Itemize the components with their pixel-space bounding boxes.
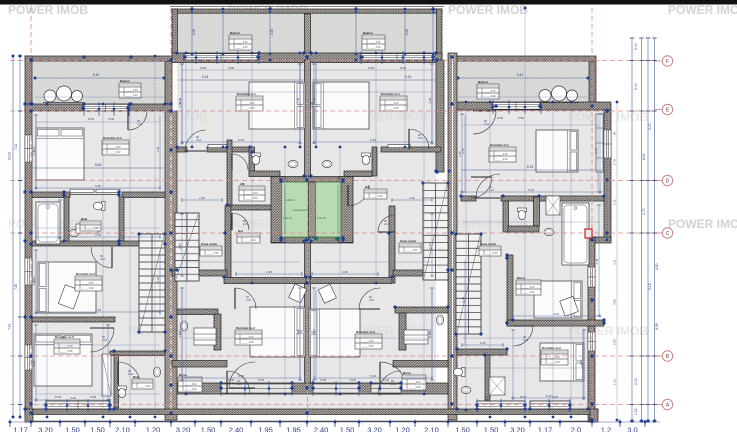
svg-text:2.10: 2.10 <box>391 382 397 386</box>
svg-text:2.70: 2.70 <box>642 208 646 215</box>
svg-text:2.20: 2.20 <box>409 196 415 200</box>
svg-text:4.80: 4.80 <box>655 263 659 270</box>
svg-text:P=90: P=90 <box>485 395 492 399</box>
svg-text:3.44: 3.44 <box>517 73 524 77</box>
svg-text:1.50: 1.50 <box>65 425 80 432</box>
svg-text:3.20: 3.20 <box>510 425 525 432</box>
svg-text:1.50: 1.50 <box>455 425 470 432</box>
svg-text:P=90: P=90 <box>518 116 525 120</box>
svg-text:P=90: P=90 <box>400 66 407 70</box>
svg-text:5.33: 5.33 <box>528 188 534 192</box>
svg-text:4.33: 4.33 <box>296 329 300 335</box>
svg-text:4.33: 4.33 <box>428 332 432 338</box>
svg-text:P=90: P=90 <box>200 66 207 70</box>
svg-text:4.50: 4.50 <box>613 299 617 305</box>
svg-text:F: F <box>666 59 669 65</box>
svg-text:2.40: 2.40 <box>314 425 329 432</box>
svg-text:P=90: P=90 <box>497 116 504 120</box>
svg-text:_____ 0.00: _____ 0.00 <box>60 350 74 353</box>
svg-text:2.10: 2.10 <box>243 222 249 226</box>
svg-text:7.41: 7.41 <box>32 149 36 155</box>
svg-text:Baie: Baie <box>81 217 88 221</box>
svg-text:_____ 0.00: _____ 0.00 <box>138 385 152 388</box>
svg-text:_____ 0.00: _____ 0.00 <box>408 386 422 389</box>
svg-text:_____ 0.00: _____ 0.00 <box>81 287 95 290</box>
svg-text:2.10: 2.10 <box>484 122 490 126</box>
svg-text:1.20: 1.20 <box>395 425 410 432</box>
svg-text:3.45: 3.45 <box>458 151 462 157</box>
svg-text:D: D <box>666 179 670 185</box>
svg-text:1.95: 1.95 <box>258 425 273 432</box>
svg-text:_____ 0.00: _____ 0.00 <box>86 227 100 230</box>
svg-text:POWER IMOB: POWER IMOB <box>8 3 88 17</box>
svg-text:2.00: 2.00 <box>634 83 638 90</box>
svg-text:_____ 0.00: _____ 0.00 <box>235 46 249 49</box>
svg-text:1.50: 1.50 <box>201 425 216 432</box>
svg-text:_____ 0.00: _____ 0.00 <box>184 388 198 391</box>
svg-text:2.10: 2.10 <box>384 222 390 226</box>
svg-text:Dormitor nr.3: Dormitor nr.3 <box>55 335 74 339</box>
svg-text:4.59: 4.59 <box>655 323 659 330</box>
svg-text:_____ 0.00: _____ 0.00 <box>108 151 122 154</box>
svg-text:4.26 m²: 4.26 m² <box>285 198 295 202</box>
svg-text:Casa scarii: Casa scarii <box>400 239 416 243</box>
svg-text:_____ 0.00: _____ 0.00 <box>483 90 497 93</box>
svg-text:Casa scarii: Casa scarii <box>480 242 496 246</box>
svg-text:4.33: 4.33 <box>178 332 182 338</box>
svg-text:_____ 0.00: _____ 0.00 <box>242 102 256 105</box>
svg-text:P=90: P=90 <box>258 378 265 382</box>
svg-text:3.07: 3.07 <box>554 312 560 316</box>
svg-text:2.40: 2.40 <box>229 425 244 432</box>
svg-text:1.17: 1.17 <box>538 425 553 432</box>
svg-text:Birou: Birou <box>517 276 525 280</box>
svg-text:_____ 0.00: _____ 0.00 <box>242 107 256 110</box>
svg-text:90: 90 <box>613 131 617 135</box>
svg-text:P=90: P=90 <box>228 66 235 70</box>
svg-text:1.20: 1.20 <box>146 425 161 432</box>
svg-text:POWER IMOB: POWER IMOB <box>448 3 528 17</box>
svg-text:2.00: 2.00 <box>634 378 638 385</box>
svg-text:7.20: 7.20 <box>14 284 18 290</box>
svg-text:2.00: 2.00 <box>613 339 617 345</box>
svg-text:2.10: 2.10 <box>115 425 130 432</box>
svg-text:7.41: 7.41 <box>8 324 12 330</box>
svg-text:_____ 0.00: _____ 0.00 <box>485 252 499 255</box>
svg-text:2.00: 2.00 <box>405 29 409 35</box>
svg-text:3.20: 3.20 <box>32 279 36 285</box>
svg-text:1.50: 1.50 <box>90 425 105 432</box>
svg-text:_____ 0.00: _____ 0.00 <box>245 197 259 200</box>
svg-text:_____ 0.00: _____ 0.00 <box>408 381 422 384</box>
svg-text:Balcon: Balcon <box>120 79 130 83</box>
svg-text:3.31: 3.31 <box>461 296 465 302</box>
svg-text:_____ 0.00: _____ 0.00 <box>245 192 259 195</box>
svg-text:1.50: 1.50 <box>484 425 499 432</box>
svg-text:2.00: 2.00 <box>270 29 274 35</box>
svg-text:3.20: 3.20 <box>367 425 382 432</box>
svg-text:3.20: 3.20 <box>32 360 36 366</box>
svg-text:_____ 0.00: _____ 0.00 <box>241 341 255 344</box>
svg-text:5.33: 5.33 <box>370 138 376 142</box>
svg-text:1.12: 1.12 <box>613 379 617 385</box>
svg-text:1.00 .30: 1.00 .30 <box>283 217 292 220</box>
svg-text:_____ 0.00: _____ 0.00 <box>125 89 139 92</box>
svg-text:2.10: 2.10 <box>369 298 375 302</box>
svg-text:3.20: 3.20 <box>176 425 191 432</box>
svg-text:2.10: 2.10 <box>196 138 202 142</box>
svg-text:2.10: 2.10 <box>137 122 143 126</box>
svg-text:3.90: 3.90 <box>310 101 314 107</box>
svg-text:P=90: P=90 <box>108 117 115 121</box>
svg-text:ceva denumire: ceva denumire <box>293 209 309 212</box>
svg-text:P=90: P=90 <box>55 395 62 399</box>
svg-text:LM: LM <box>240 182 245 186</box>
svg-text:P=90: P=90 <box>88 117 95 121</box>
svg-text:_____ 0.00: _____ 0.00 <box>522 291 536 294</box>
svg-text:1.95: 1.95 <box>286 425 301 432</box>
svg-text:_____ 0.00: _____ 0.00 <box>184 383 198 386</box>
svg-text:_____ 0.00: _____ 0.00 <box>522 286 536 289</box>
svg-text:2.00: 2.00 <box>192 29 196 35</box>
svg-text:Dormitor nr.2: Dormitor nr.2 <box>76 272 95 276</box>
svg-text:P=90: P=90 <box>320 378 327 382</box>
svg-text:2.20: 2.20 <box>480 341 486 345</box>
svg-text:Balcon: Balcon <box>478 80 488 84</box>
svg-text:2.70: 2.70 <box>613 159 617 165</box>
svg-text:2.00: 2.00 <box>648 123 652 130</box>
svg-text:2.00: 2.00 <box>634 43 638 50</box>
svg-text:2.10: 2.10 <box>246 298 252 302</box>
svg-text:2.20: 2.20 <box>199 196 205 200</box>
svg-text:Dormitor nr.1: Dormitor nr.1 <box>381 92 400 96</box>
svg-text:5.40: 5.40 <box>93 73 100 77</box>
svg-text:5.55: 5.55 <box>95 163 102 167</box>
svg-text:Balcon: Balcon <box>363 31 373 35</box>
svg-text:5.55: 5.55 <box>95 184 101 188</box>
svg-text:2.05: 2.05 <box>342 270 348 274</box>
svg-text:3.20: 3.20 <box>156 276 160 282</box>
svg-text:5.33: 5.33 <box>405 75 412 79</box>
svg-text:3.20: 3.20 <box>546 394 552 398</box>
svg-text:3.11: 3.11 <box>613 259 617 265</box>
svg-text:1.22: 1.22 <box>634 408 638 415</box>
svg-text:_____ 0.00: _____ 0.00 <box>495 158 509 161</box>
svg-text:_____ 0.00: _____ 0.00 <box>125 94 139 97</box>
svg-text:2.0: 2.0 <box>571 425 581 432</box>
svg-text:P=90: P=90 <box>383 378 390 382</box>
svg-text:5.33: 5.33 <box>202 75 209 79</box>
svg-text:_____ 0.00: _____ 0.00 <box>370 195 384 198</box>
svg-text:3.20: 3.20 <box>38 425 53 432</box>
svg-text:2.10: 2.10 <box>424 425 439 432</box>
svg-text:1.00 .30: 1.00 .30 <box>317 217 326 220</box>
svg-text:1.2: 1.2 <box>601 425 611 432</box>
svg-text:Dormitor nr.1: Dormitor nr.1 <box>490 143 509 147</box>
svg-text:Dormitor nr.1: Dormitor nr.1 <box>237 92 256 96</box>
svg-text:Hol: Hol <box>365 185 370 189</box>
svg-text:Dormitor nr.2: Dormitor nr.2 <box>542 346 561 350</box>
svg-text:1.50: 1.50 <box>340 425 355 432</box>
svg-text:7.41: 7.41 <box>14 144 18 150</box>
svg-text:Dormitor nr.2: Dormitor nr.2 <box>356 330 375 334</box>
svg-text:Hol: Hol <box>238 229 243 233</box>
svg-text:1.17: 1.17 <box>13 425 28 432</box>
svg-text:_____ 0.00: _____ 0.00 <box>405 249 419 252</box>
svg-text:5.33: 5.33 <box>238 138 244 142</box>
svg-text:P=90: P=90 <box>90 395 97 399</box>
svg-text:Dormitor nr.2: Dormitor nr.2 <box>236 326 255 330</box>
svg-text:_____ 0.00: _____ 0.00 <box>241 336 255 339</box>
svg-text:POWER IMOB: POWER IMOB <box>668 3 737 17</box>
svg-text:3.0: 3.0 <box>627 425 637 432</box>
svg-text:_____ 0.00: _____ 0.00 <box>235 41 249 44</box>
svg-text:2.40: 2.40 <box>178 243 182 249</box>
svg-text:2.10: 2.10 <box>418 136 424 140</box>
svg-text:3.20: 3.20 <box>95 308 101 312</box>
svg-text:P=90: P=90 <box>368 66 375 70</box>
svg-text:_____ 0.00: _____ 0.00 <box>108 146 122 149</box>
svg-text:C: C <box>666 231 670 237</box>
svg-text:4.45: 4.45 <box>296 97 300 103</box>
svg-text:3.31: 3.31 <box>580 362 584 368</box>
svg-text:2.05: 2.05 <box>266 270 272 274</box>
svg-text:10.23: 10.23 <box>8 152 12 160</box>
svg-text:_____ 0.00: _____ 0.00 <box>368 41 382 44</box>
svg-text:Baie: Baie <box>133 375 140 379</box>
svg-text:3.11: 3.11 <box>613 199 617 205</box>
svg-text:5.33: 5.33 <box>527 165 534 169</box>
svg-text:Dormitor nr.1: Dormitor nr.1 <box>103 136 122 140</box>
svg-text:2.10: 2.10 <box>237 382 243 386</box>
svg-text:3.20: 3.20 <box>70 396 76 400</box>
svg-text:_____ 0.00: _____ 0.00 <box>361 345 375 348</box>
svg-text:P=90: P=90 <box>228 378 235 382</box>
svg-text:2.10: 2.10 <box>523 338 529 342</box>
svg-text:2.20: 2.20 <box>95 233 101 237</box>
svg-text:8.60: 8.60 <box>642 153 646 160</box>
svg-text:3.45: 3.45 <box>594 148 598 154</box>
svg-text:_____ 0.00: _____ 0.00 <box>368 46 382 49</box>
svg-text:2.40: 2.40 <box>428 243 432 249</box>
svg-text:_____ 0.00: _____ 0.00 <box>81 282 95 285</box>
svg-text:5.15: 5.15 <box>648 283 652 290</box>
svg-text:3.45: 3.45 <box>156 146 160 152</box>
svg-text:Casa scarii: Casa scarii <box>201 242 217 246</box>
svg-text:_____ 0.00: _____ 0.00 <box>386 107 400 110</box>
svg-text:Birou: Birou <box>403 371 411 375</box>
svg-text:Balcon: Balcon <box>230 31 240 35</box>
svg-text:_____ 0.00: _____ 0.00 <box>243 239 257 242</box>
svg-text:3.90: 3.90 <box>178 101 182 107</box>
svg-text:_____ 0.00: _____ 0.00 <box>206 252 220 255</box>
svg-text:3.45: 3.45 <box>595 258 599 264</box>
svg-text:_____ 0.00: _____ 0.00 <box>386 102 400 105</box>
svg-text:2.10: 2.10 <box>128 372 134 376</box>
svg-text:POWER IMOB: POWER IMOB <box>668 217 737 231</box>
svg-text:5.33: 5.33 <box>370 374 376 378</box>
svg-text:5.33: 5.33 <box>238 374 244 378</box>
svg-text:P=90: P=90 <box>350 378 357 382</box>
svg-text:_____ 0.00: _____ 0.00 <box>547 361 561 364</box>
svg-text:3.90: 3.90 <box>428 97 432 103</box>
svg-text:_____ 0.00: _____ 0.00 <box>60 345 74 348</box>
svg-text:_____ 0.00: _____ 0.00 <box>361 340 375 343</box>
svg-text:_____ 0.00: _____ 0.00 <box>483 95 497 98</box>
svg-text:_____ 0.00: _____ 0.00 <box>495 153 509 156</box>
svg-text:P=90: P=90 <box>520 395 527 399</box>
